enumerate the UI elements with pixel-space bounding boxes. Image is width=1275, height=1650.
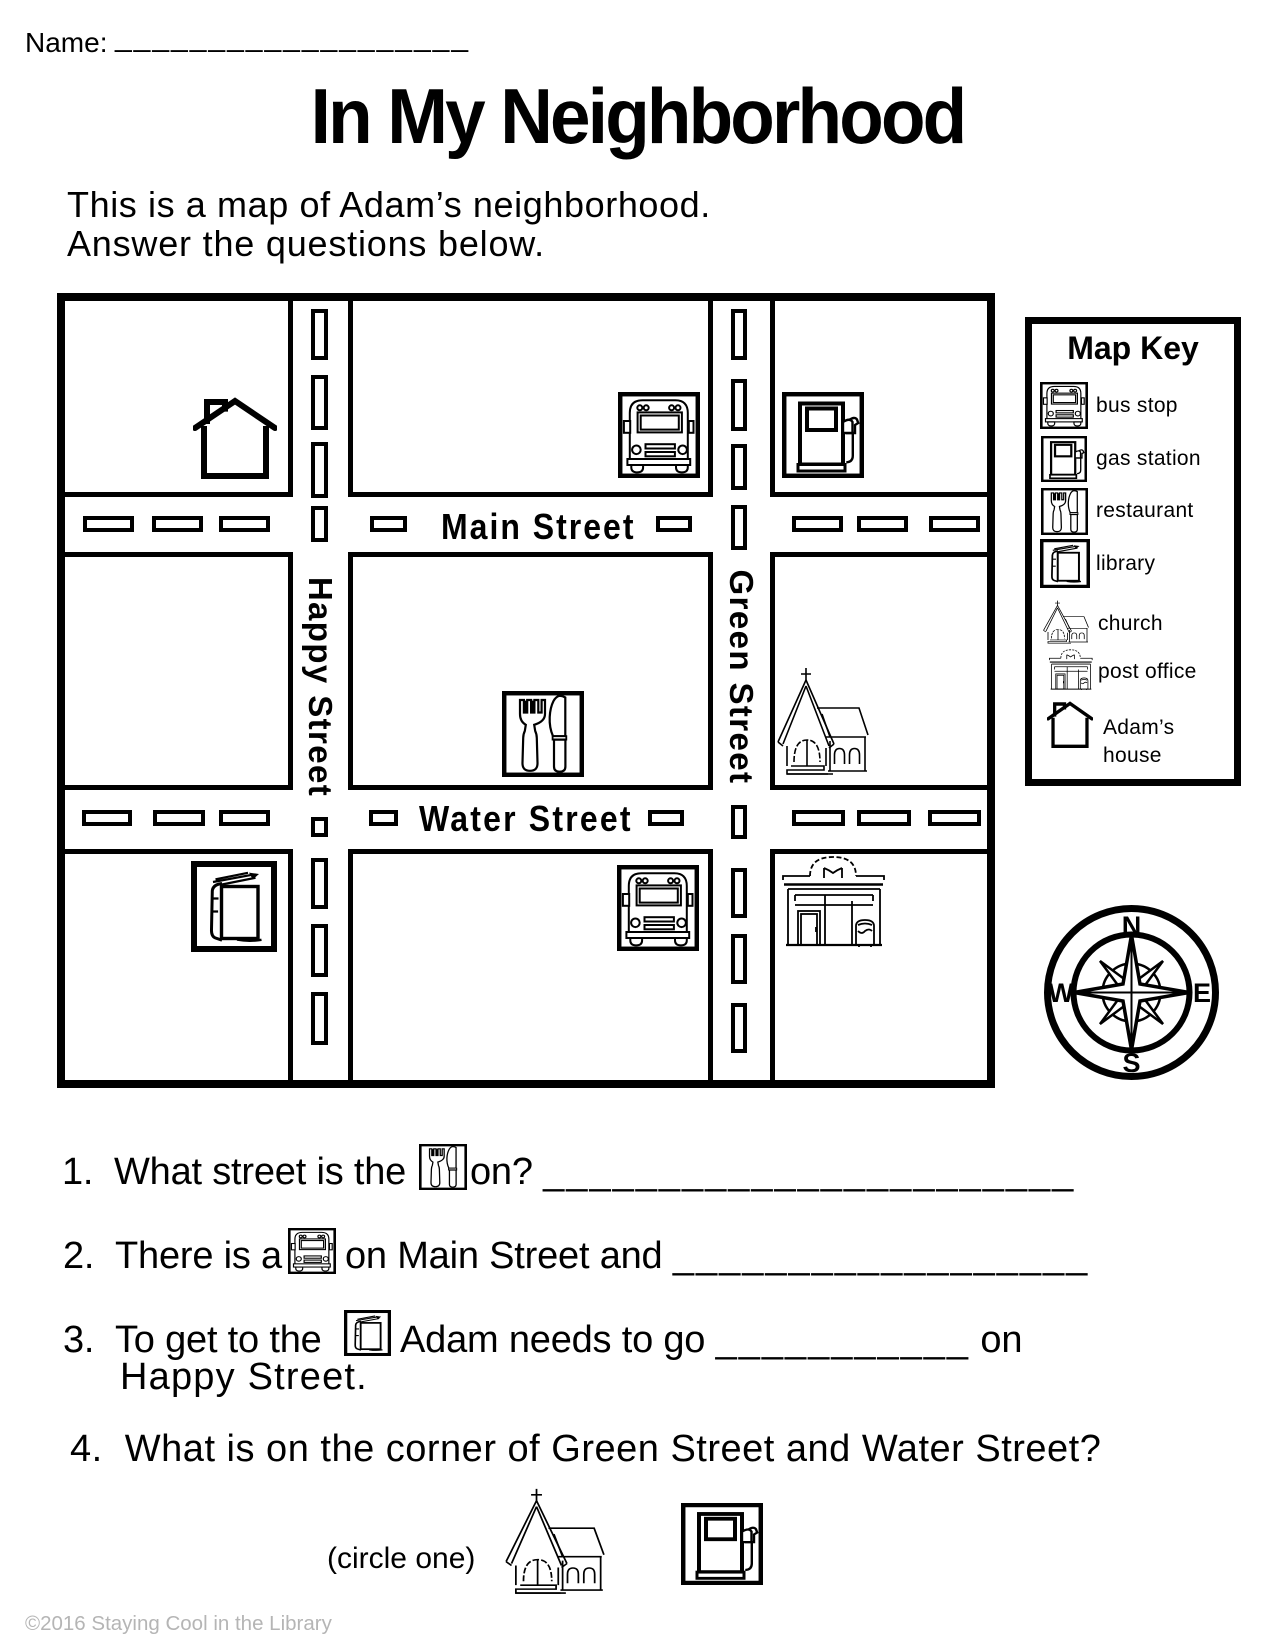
svg-text:N: N	[1122, 911, 1142, 941]
svg-text:E: E	[1193, 978, 1211, 1008]
svg-text:S: S	[1122, 1048, 1140, 1078]
svg-text:W: W	[1048, 978, 1074, 1008]
